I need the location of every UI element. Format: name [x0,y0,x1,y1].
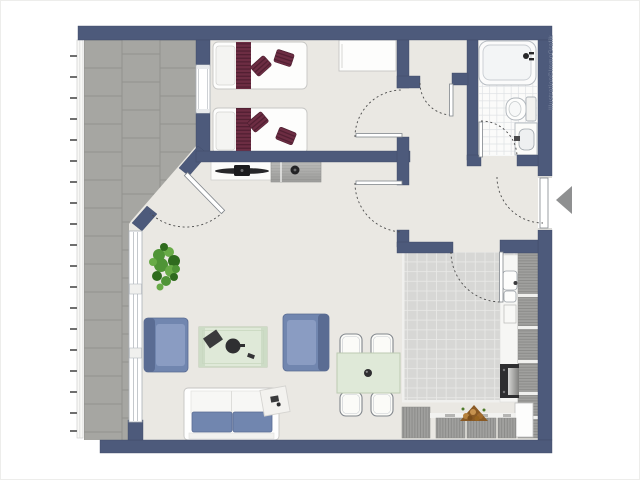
hall-wall-a-stub [397,76,420,88]
entrance-arrow-icon [556,186,572,214]
wall-bottom [100,440,552,453]
dishwasher [504,305,516,323]
dining-chair [371,392,393,416]
bed-pillow [216,46,235,85]
living-room-window [129,231,142,422]
bathroom [479,40,538,156]
bedroom-window [196,65,210,113]
stove [500,364,519,398]
basin-faucet [514,136,520,141]
fridge [515,403,533,437]
floor-plan-canvas: Illustration©ImmoGrafik [0,0,640,480]
sofa-cushion [192,412,232,432]
tub-faucet [523,53,529,59]
hall-wall-l-horiz [397,242,453,253]
window-wall-stub [128,420,143,440]
table-decor [364,369,372,377]
media-cabinet [271,159,321,182]
bed-pillow [216,112,235,150]
bed-2 [213,108,307,154]
hall-wall-b [397,137,409,185]
dining-chair [340,392,362,416]
washbasin [514,123,537,155]
watermark-text: Illustration©ImmoGrafik [547,35,555,110]
bed-runner [236,42,251,89]
kitchen-wall-top [500,240,538,253]
bowl [226,339,241,354]
bed-runner [236,108,251,154]
kitchen-sink [503,271,518,302]
bedroom-wall-left-upper [196,40,210,66]
window-mullion [130,284,142,294]
bath-wall-left [467,40,478,160]
bath-wall-bottom-right [517,155,538,166]
coffee-table [199,327,267,367]
wardrobe [339,40,396,71]
wall-top [78,26,552,40]
side-table [260,386,290,416]
toilet [506,97,536,121]
floor-plan-page: Illustration©ImmoGrafik [0,0,640,480]
armchair-right [283,314,329,371]
bedroom-wall-bottom [196,151,410,162]
bathtub [479,41,536,85]
bed-1 [213,42,307,89]
railing-ticks [70,55,77,432]
armchair-left [144,318,188,372]
tv-sideboard [211,161,273,180]
closet-wall-stub [452,73,468,85]
window-mullion [130,348,142,358]
wall-right-lower [538,230,552,440]
